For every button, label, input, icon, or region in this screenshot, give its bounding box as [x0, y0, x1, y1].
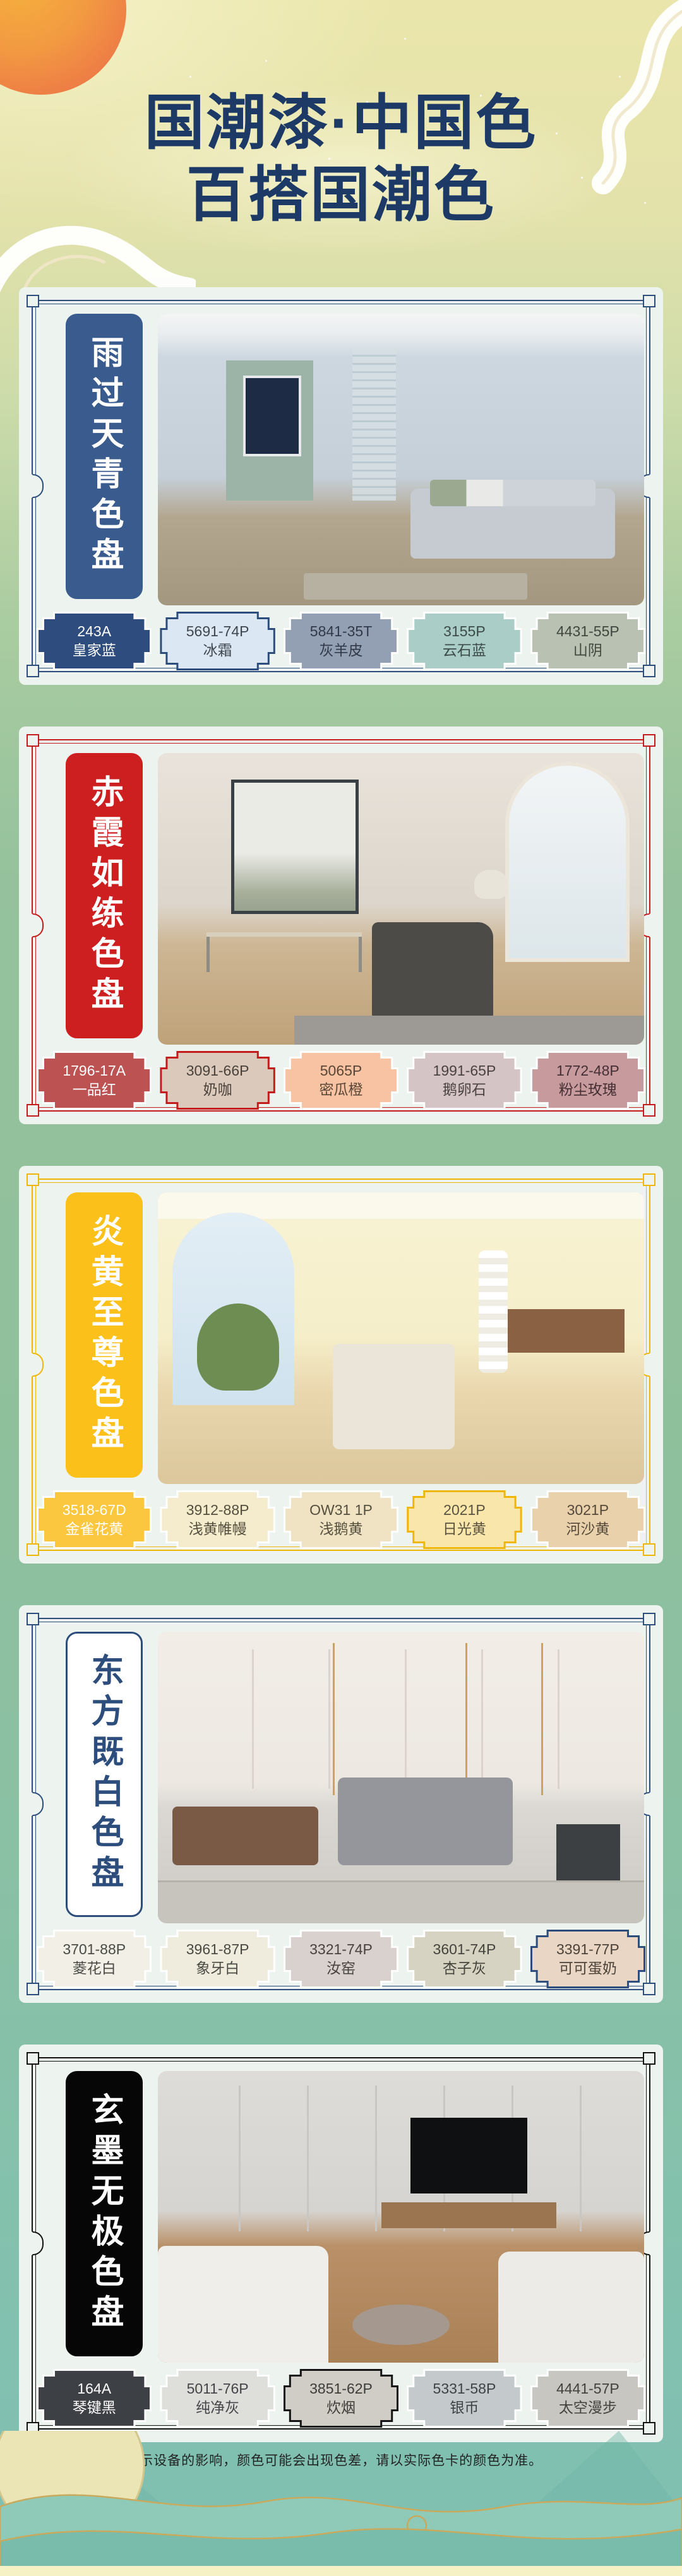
- color-swatch: 5691-74P 冰霜: [160, 612, 275, 670]
- swatch-name: 奶咖: [203, 1083, 232, 1097]
- swatch-face: 3961-87P 象牙白: [162, 1932, 273, 1986]
- swatch-face: 5011-76P 纯净灰: [162, 2371, 273, 2426]
- swatch-name: 一品红: [73, 1083, 116, 1097]
- swatch-name: 皇家蓝: [73, 643, 116, 658]
- swatch-code: OW31 1P: [309, 1503, 373, 1517]
- frame-corner-ornament: [643, 734, 655, 747]
- color-swatch: 4431-55P 山阴: [530, 612, 645, 670]
- swatch-code: 3021P: [567, 1503, 609, 1517]
- swatch-name: 菱花白: [73, 1961, 116, 1976]
- palette-card-east-white: 东方既白色盘 3701-88P 菱花白: [19, 1605, 663, 2003]
- scene-shape: [177, 1649, 625, 1790]
- palette-title: 玄墨无极色盘: [88, 2092, 121, 2335]
- swatch-face: 5691-74P 冰霜: [162, 614, 273, 668]
- swatch-face: 3601-74P 杏子灰: [409, 1932, 520, 1986]
- swatch-face: 4441-57P 太空漫步: [532, 2371, 643, 2426]
- swatch-name: 山阴: [573, 643, 602, 658]
- frame-corner-ornament: [643, 1613, 655, 1625]
- swatch-face: 1991-65P 鹅卵石: [409, 1053, 520, 1108]
- palette-banner: 炎黄至尊色盘: [66, 1192, 143, 1478]
- palette-card-list: 雨过天青色盘 243A 皇家蓝: [19, 287, 663, 2442]
- scene-shape: [172, 1807, 318, 1865]
- scene-shape: [246, 378, 299, 454]
- swatch-code: 3851-62P: [309, 2382, 373, 2396]
- color-swatch: 5011-76P 纯净灰: [160, 2369, 275, 2428]
- frame-notch-ornament: [32, 2231, 44, 2255]
- swatch-name: 可可蛋奶: [559, 1961, 617, 1976]
- palette-banner: 东方既白色盘: [66, 1632, 143, 1917]
- color-swatch: 3961-87P 象牙白: [160, 1930, 275, 1988]
- frame-notch-ornament: [32, 474, 44, 498]
- swatch-name: 太空漫步: [559, 2401, 617, 2415]
- frame-corner-ornament: [27, 2052, 39, 2065]
- frame-notch-ornament: [32, 1792, 44, 1816]
- swatch-row: 243A 皇家蓝 5691-74P 冰霜 5841-35T 灰羊皮: [37, 612, 645, 670]
- frame-corner-ornament: [643, 1173, 655, 1186]
- swatch-code: 3155P: [443, 624, 486, 639]
- scene-shape: [333, 1643, 335, 1795]
- frame-notch-ornament: [32, 913, 44, 937]
- swatch-face: 4431-55P 山阴: [532, 614, 643, 668]
- color-swatch: 3701-88P 菱花白: [37, 1930, 152, 1988]
- swatch-code: 4431-55P: [556, 624, 619, 639]
- swatch-name: 河沙黄: [566, 1522, 609, 1536]
- palette-title: 炎黄至尊色盘: [88, 1214, 121, 1456]
- star-dots-decoration: [265, 60, 267, 62]
- poster-title-line1: 国潮漆·中国色: [0, 87, 682, 159]
- frame-corner-ornament: [27, 1173, 39, 1186]
- scene-shape: [158, 1880, 644, 1923]
- room-photo: [158, 1192, 644, 1484]
- room-photo: [158, 314, 644, 605]
- palette-banner: 雨过天青色盘: [66, 314, 143, 599]
- swatch-name: 灰羊皮: [320, 643, 363, 658]
- color-swatch: 3021P 河沙黄: [530, 1490, 645, 1549]
- color-swatch: 164A 琴键黑: [37, 2369, 152, 2428]
- poster-title: 国潮漆·中国色 百搭国潮色: [0, 87, 682, 231]
- swatch-code: 3912-88P: [186, 1503, 249, 1517]
- scene-shape: [474, 870, 508, 899]
- palette-banner: 赤霞如练色盘: [66, 753, 143, 1038]
- poster-page: 国潮漆·中国色 百搭国潮色 雨过天青色盘: [0, 0, 682, 2576]
- frame-corner-ornament: [27, 295, 39, 307]
- palette-card-ink-black: 玄墨无极色盘 164A 琴键黑: [19, 2045, 663, 2442]
- palette-title: 赤霞如练色盘: [88, 775, 121, 1017]
- color-swatch: 1991-65P 鹅卵石: [407, 1051, 522, 1110]
- scene-shape: [158, 2246, 328, 2363]
- swatch-face: 3391-77P 可可蛋奶: [532, 1932, 643, 1986]
- scene-shape: [498, 2252, 644, 2363]
- swatch-code: 5011-76P: [187, 2382, 249, 2396]
- color-swatch: OW31 1P 浅鹅黄: [284, 1490, 398, 1549]
- poster-header: 国潮漆·中国色 百搭国潮色: [0, 0, 682, 287]
- swatch-code: 4441-57P: [556, 2382, 619, 2396]
- scene-shape: [231, 780, 359, 914]
- swatch-name: 杏子灰: [443, 1961, 486, 1976]
- color-swatch: 5065P 密瓜橙: [284, 1051, 398, 1110]
- scene-shape: [410, 2118, 527, 2193]
- swatch-name: 琴键黑: [73, 2401, 116, 2415]
- swatch-code: 3701-88P: [63, 1942, 126, 1957]
- color-swatch: 243A 皇家蓝: [37, 612, 152, 670]
- color-swatch: 3091-66P 奶咖: [160, 1051, 275, 1110]
- swatch-row: 164A 琴键黑 5011-76P 纯净灰 3851-62P 炊烟: [37, 2369, 645, 2428]
- swatch-name: 金雀花黄: [65, 1522, 123, 1536]
- color-swatch: 3601-74P 杏子灰: [407, 1930, 522, 1988]
- swatch-code: 1991-65P: [433, 1064, 496, 1078]
- swatch-name: 鹅卵石: [443, 1083, 486, 1097]
- frame-notch-ornament: [32, 1353, 44, 1377]
- swatch-name: 浅鹅黄: [320, 1522, 363, 1536]
- swatch-code: 243A: [77, 624, 111, 639]
- swatch-face: 3321-74P 汝窑: [285, 1932, 397, 1986]
- scene-shape: [304, 573, 527, 600]
- scene-shape: [430, 480, 595, 506]
- swatch-row: 1796-17A 一品红 3091-66P 奶咖 5065P 密瓜橙: [37, 1051, 645, 1110]
- swatch-code: 5065P: [320, 1064, 362, 1078]
- swatch-name: 浅黄帷幔: [189, 1522, 247, 1536]
- color-swatch: 3851-62P 炊烟: [284, 2369, 398, 2428]
- swatch-code: 1796-17A: [63, 1064, 126, 1078]
- scene-shape: [381, 2202, 556, 2229]
- scene-shape: [206, 932, 362, 971]
- palette-title: 东方既白色盘: [88, 1653, 121, 1896]
- color-swatch: 3391-77P 可可蛋奶: [530, 1930, 645, 1988]
- frame-corner-ornament: [27, 1613, 39, 1625]
- room-photo: [158, 2071, 644, 2363]
- swatch-face: 1772-48P 粉尘玫瑰: [532, 1053, 643, 1108]
- swatch-face: 5331-58P 银币: [409, 2371, 520, 2426]
- scene-shape: [352, 348, 396, 500]
- swatch-code: 3601-74P: [433, 1942, 496, 1957]
- palette-card-red-glow: 赤霞如练色盘 1796-17A 一品红: [19, 727, 663, 1124]
- frame-corner-ornament: [27, 734, 39, 747]
- color-swatch: 5841-35T 灰羊皮: [284, 612, 398, 670]
- swatch-name: 日光黄: [443, 1522, 486, 1536]
- color-swatch: 3518-67D 金雀花黄: [37, 1490, 152, 1549]
- swatch-name: 密瓜橙: [320, 1083, 363, 1097]
- palette-card-imperial-yellow: 炎黄至尊色盘 3518-67D 金雀花黄: [19, 1166, 663, 1564]
- palette-card-rain-blue: 雨过天青色盘 243A 皇家蓝: [19, 287, 663, 685]
- scene-shape: [294, 1016, 644, 1045]
- swatch-code: 164A: [77, 2382, 111, 2396]
- color-swatch: 4441-57P 太空漫步: [530, 2369, 645, 2428]
- swatch-face: 3021P 河沙黄: [532, 1492, 643, 1547]
- swatch-face: 164A 琴键黑: [39, 2371, 150, 2426]
- swatch-row: 3518-67D 金雀花黄 3912-88P 浅黄帷幔 OW31 1P 浅鹅: [37, 1490, 645, 1549]
- swatch-code: 3518-67D: [63, 1503, 126, 1517]
- swatch-code: 3091-66P: [186, 1064, 249, 1078]
- swatch-face: 3518-67D 金雀花黄: [39, 1492, 150, 1547]
- swatch-name: 纯净灰: [196, 2401, 239, 2415]
- swatch-face: 1796-17A 一品红: [39, 1053, 150, 1108]
- color-swatch: 5331-58P 银币: [407, 2369, 522, 2428]
- room-photo: [158, 753, 644, 1045]
- swatch-face: 2021P 日光黄: [409, 1492, 520, 1547]
- swatch-name: 炊烟: [326, 2401, 356, 2415]
- swatch-code: 5691-74P: [186, 624, 249, 639]
- swatch-face: 3701-88P 菱花白: [39, 1932, 150, 1986]
- scene-shape: [197, 1303, 280, 1391]
- poster-title-line2: 百搭国潮色: [0, 159, 682, 231]
- frame-corner-ornament: [643, 2052, 655, 2065]
- scene-shape: [479, 1250, 508, 1373]
- room-photo: [158, 1632, 644, 1923]
- swatch-name: 象牙白: [196, 1961, 239, 1976]
- scene-shape: [338, 1778, 513, 1865]
- scene-shape: [372, 922, 494, 1018]
- swatch-face: 3912-88P 浅黄帷幔: [162, 1492, 273, 1547]
- swatch-face: 3091-66P 奶咖: [162, 1053, 273, 1108]
- color-swatch: 1796-17A 一品红: [37, 1051, 152, 1110]
- swatch-name: 银币: [450, 2401, 479, 2415]
- color-swatch: 3155P 云石蓝: [407, 612, 522, 670]
- swatch-face: 3155P 云石蓝: [409, 614, 520, 668]
- swatch-face: 3851-62P 炊烟: [285, 2371, 397, 2426]
- swatch-code: 1772-48P: [556, 1064, 619, 1078]
- scene-shape: [352, 2305, 450, 2346]
- swatch-code: 3391-77P: [556, 1942, 619, 1957]
- color-swatch: 1772-48P 粉尘玫瑰: [530, 1051, 645, 1110]
- swatch-code: 3321-74P: [309, 1942, 373, 1957]
- swatch-face: 5841-35T 灰羊皮: [285, 614, 397, 668]
- swatch-code: 5841-35T: [310, 624, 372, 639]
- scene-shape: [333, 1344, 455, 1449]
- palette-title: 雨过天青色盘: [88, 335, 121, 578]
- swatch-face: OW31 1P 浅鹅黄: [285, 1492, 397, 1547]
- swatch-row: 3701-88P 菱花白 3961-87P 象牙白 3321-74P 汝窑: [37, 1930, 645, 1988]
- frame-corner-ornament: [643, 295, 655, 307]
- palette-banner: 玄墨无极色盘: [66, 2071, 143, 2356]
- swatch-face: 5065P 密瓜橙: [285, 1053, 397, 1108]
- color-swatch: 3912-88P 浅黄帷幔: [160, 1490, 275, 1549]
- wave-decoration: [0, 2431, 682, 2576]
- scene-shape: [556, 1824, 619, 1882]
- scene-shape: [508, 1309, 625, 1353]
- color-swatch: 3321-74P 汝窑: [284, 1930, 398, 1988]
- color-swatch: 2021P 日光黄: [407, 1490, 522, 1549]
- swatch-name: 云石蓝: [443, 643, 486, 658]
- swatch-name: 汝窑: [326, 1961, 356, 1976]
- swatch-face: 243A 皇家蓝: [39, 614, 150, 668]
- swatch-name: 冰霜: [203, 643, 232, 658]
- swatch-name: 粉尘玫瑰: [559, 1083, 617, 1097]
- swatch-code: 5331-58P: [433, 2382, 496, 2396]
- swatch-code: 2021P: [443, 1503, 486, 1517]
- swatch-code: 3961-87P: [186, 1942, 249, 1957]
- scene-shape: [505, 762, 630, 962]
